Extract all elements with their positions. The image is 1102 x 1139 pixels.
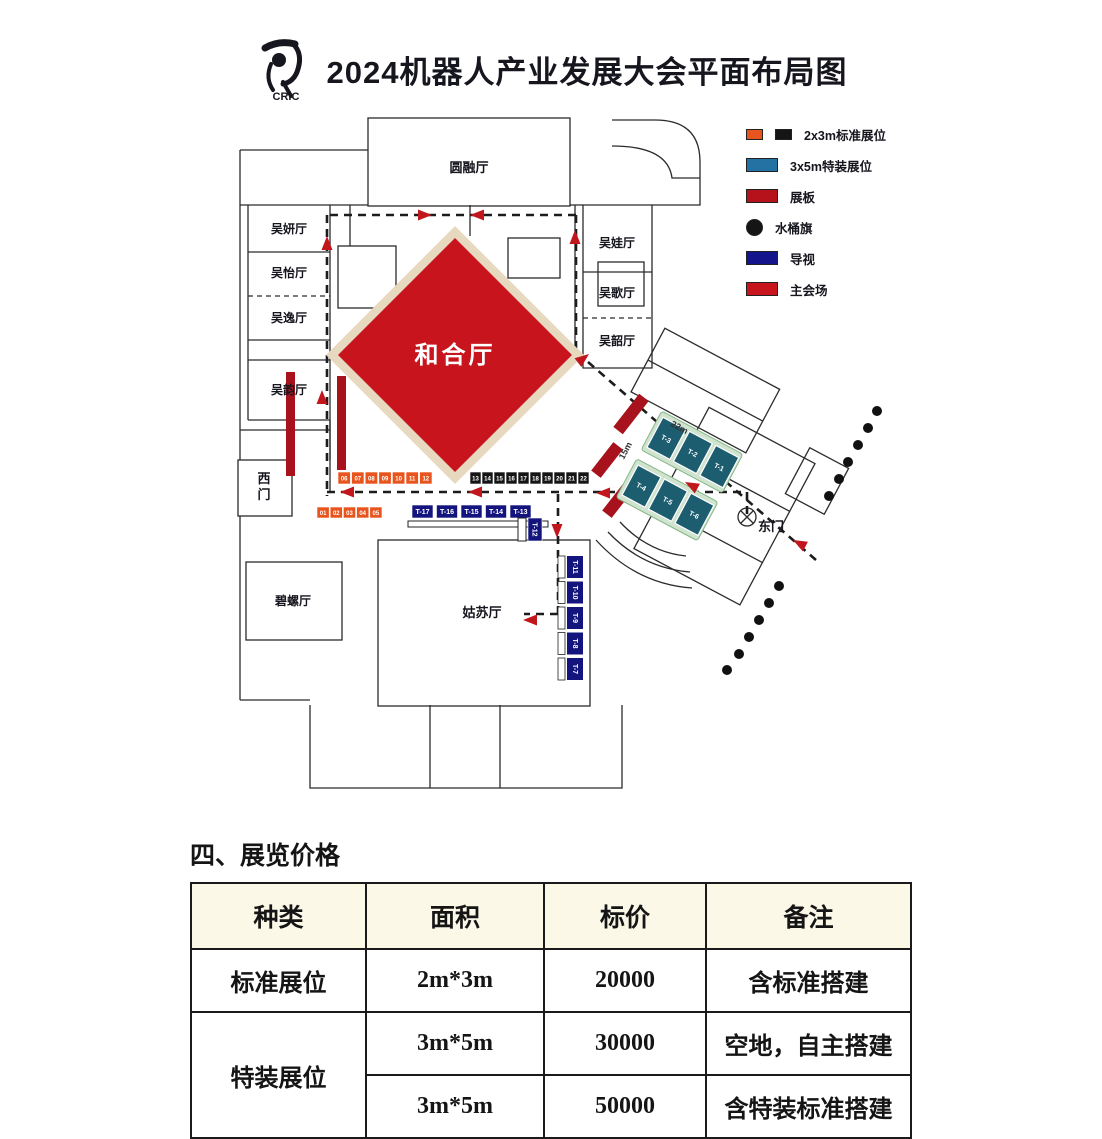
- room-gusu: 姑苏厅: [462, 605, 501, 620]
- booth-label: T-12: [531, 522, 538, 536]
- cell-price: 50000: [544, 1075, 706, 1138]
- page-header: CRIC 2024机器人产业发展大会平面布局图: [0, 34, 1102, 104]
- water-flag-dot: [722, 665, 732, 675]
- booth-label: 20: [556, 476, 563, 482]
- booth-label: 15: [496, 476, 503, 482]
- table-row: 标准展位 2m*3m 20000 含标准搭建: [191, 949, 911, 1012]
- booth-label: T-8: [571, 638, 578, 648]
- booth-label: T-7: [571, 664, 578, 674]
- east-gate-label: 东门: [758, 519, 784, 534]
- booth-label: 19: [544, 476, 551, 482]
- route-arrow: [523, 615, 537, 626]
- pricing-section-title: 四、展览价格: [190, 836, 340, 872]
- page-title: 2024机器人产业发展大会平面布局图: [327, 47, 848, 92]
- route-arrow: [468, 487, 482, 498]
- hehe-hall-label: 和合厅: [415, 341, 496, 369]
- booth-label: 14: [484, 476, 491, 482]
- route-arrow: [470, 210, 484, 221]
- logo-figure: [265, 43, 300, 96]
- col-header-note: 备注: [706, 883, 911, 949]
- route-arrow: [552, 524, 563, 538]
- booth-label: 02: [333, 511, 340, 517]
- room-wuyi2: 吴逸厅: [271, 310, 307, 325]
- cell-type: 标准展位: [191, 949, 366, 1012]
- booth-label: 16: [508, 476, 515, 482]
- pricing-table: 种类 面积 标价 备注 标准展位 2m*3m 20000 含标准搭建 特装展位 …: [190, 882, 912, 1139]
- water-flag-dot: [853, 440, 863, 450]
- booth-label: 10: [395, 476, 402, 482]
- booth-label: T-11: [571, 560, 578, 574]
- booth-label: 17: [520, 476, 527, 482]
- cell-price: 20000: [544, 949, 706, 1012]
- table-header-row: 种类 面积 标价 备注: [191, 883, 911, 949]
- booth-label: T-9: [571, 613, 578, 623]
- booth-label: 22: [580, 476, 587, 482]
- booth-label: 03: [346, 511, 353, 517]
- booth-label: T-10: [571, 585, 578, 599]
- room-wuyun: 吴韵厅: [271, 382, 307, 397]
- booth-label: 04: [359, 511, 366, 517]
- route-arrow: [322, 236, 333, 250]
- water-flag-dot: [754, 615, 764, 625]
- cell-note: 空地，自主搭建: [706, 1012, 911, 1075]
- booth-label: T-15: [464, 509, 478, 516]
- route-arrow: [570, 230, 581, 244]
- col-header-price: 标价: [544, 883, 706, 949]
- water-flag-dot: [734, 649, 744, 659]
- water-flags: [722, 406, 882, 675]
- col-header-area: 面积: [366, 883, 544, 949]
- booth-label: 21: [568, 476, 575, 482]
- building-walls: [238, 118, 849, 788]
- booth-label: 07: [354, 476, 361, 482]
- room-wuge: 吴歌厅: [599, 285, 635, 300]
- cell-note: 含标准搭建: [706, 949, 911, 1012]
- booth-label: T-17: [415, 509, 429, 516]
- booth-label: 05: [373, 511, 380, 517]
- cell-type-merged: 特装展位: [191, 1012, 366, 1138]
- booth-strips: 0607080910111213141516171819202122010203…: [317, 472, 589, 680]
- water-flag-dot: [824, 491, 834, 501]
- water-flag-dot: [744, 632, 754, 642]
- water-flag-dot: [872, 406, 882, 416]
- room-wushao: 吴韶厅: [599, 333, 635, 348]
- cell-area: 2m*3m: [366, 949, 544, 1012]
- dimension-15m: 15m: [617, 440, 634, 461]
- cell-price: 30000: [544, 1012, 706, 1075]
- booth-label: 01: [320, 511, 327, 517]
- route-arrow: [790, 535, 808, 551]
- booth-label: T-16: [440, 509, 454, 516]
- water-flag-dot: [764, 598, 774, 608]
- west-gate-label: 西门: [257, 471, 270, 502]
- room-yuanrong: 圆融厅: [449, 160, 488, 175]
- route-arrow: [596, 488, 610, 499]
- cric-logo: CRIC: [255, 34, 317, 104]
- booth-label: 12: [422, 476, 429, 482]
- room-wuyan: 吴妍厅: [271, 221, 307, 236]
- cell-area: 3m*5m: [366, 1012, 544, 1075]
- water-flag-dot: [834, 474, 844, 484]
- water-flag-dot: [863, 423, 873, 433]
- room-biluo: 碧螺厅: [274, 593, 311, 608]
- cell-note: 含特装标准搭建: [706, 1075, 911, 1138]
- cell-area: 3m*5m: [366, 1075, 544, 1138]
- route-arrow: [418, 210, 432, 221]
- booth-label: 08: [368, 476, 375, 482]
- booth-label: 09: [382, 476, 389, 482]
- booth-label: 06: [341, 476, 348, 482]
- water-flag-dot: [774, 581, 784, 591]
- booth-label: 18: [532, 476, 539, 482]
- water-flag-dot: [843, 457, 853, 467]
- floor-plan: 和合厅 T-3 T-2 T-1 T-4 T-5 T-6 22m 15m 0607…: [0, 105, 1102, 815]
- booth-label: T-13: [513, 509, 527, 516]
- table-row: 特装展位 3m*5m 30000 空地，自主搭建: [191, 1012, 911, 1075]
- booth-label: T-14: [489, 509, 503, 516]
- booth-label: 11: [409, 476, 416, 482]
- room-wuyi: 吴怡厅: [271, 265, 307, 280]
- booth-label: 13: [472, 476, 479, 482]
- logo-text: CRIC: [272, 91, 299, 103]
- col-header-type: 种类: [191, 883, 366, 949]
- route-arrow: [340, 487, 354, 498]
- room-wuwa: 吴娃厅: [599, 235, 635, 250]
